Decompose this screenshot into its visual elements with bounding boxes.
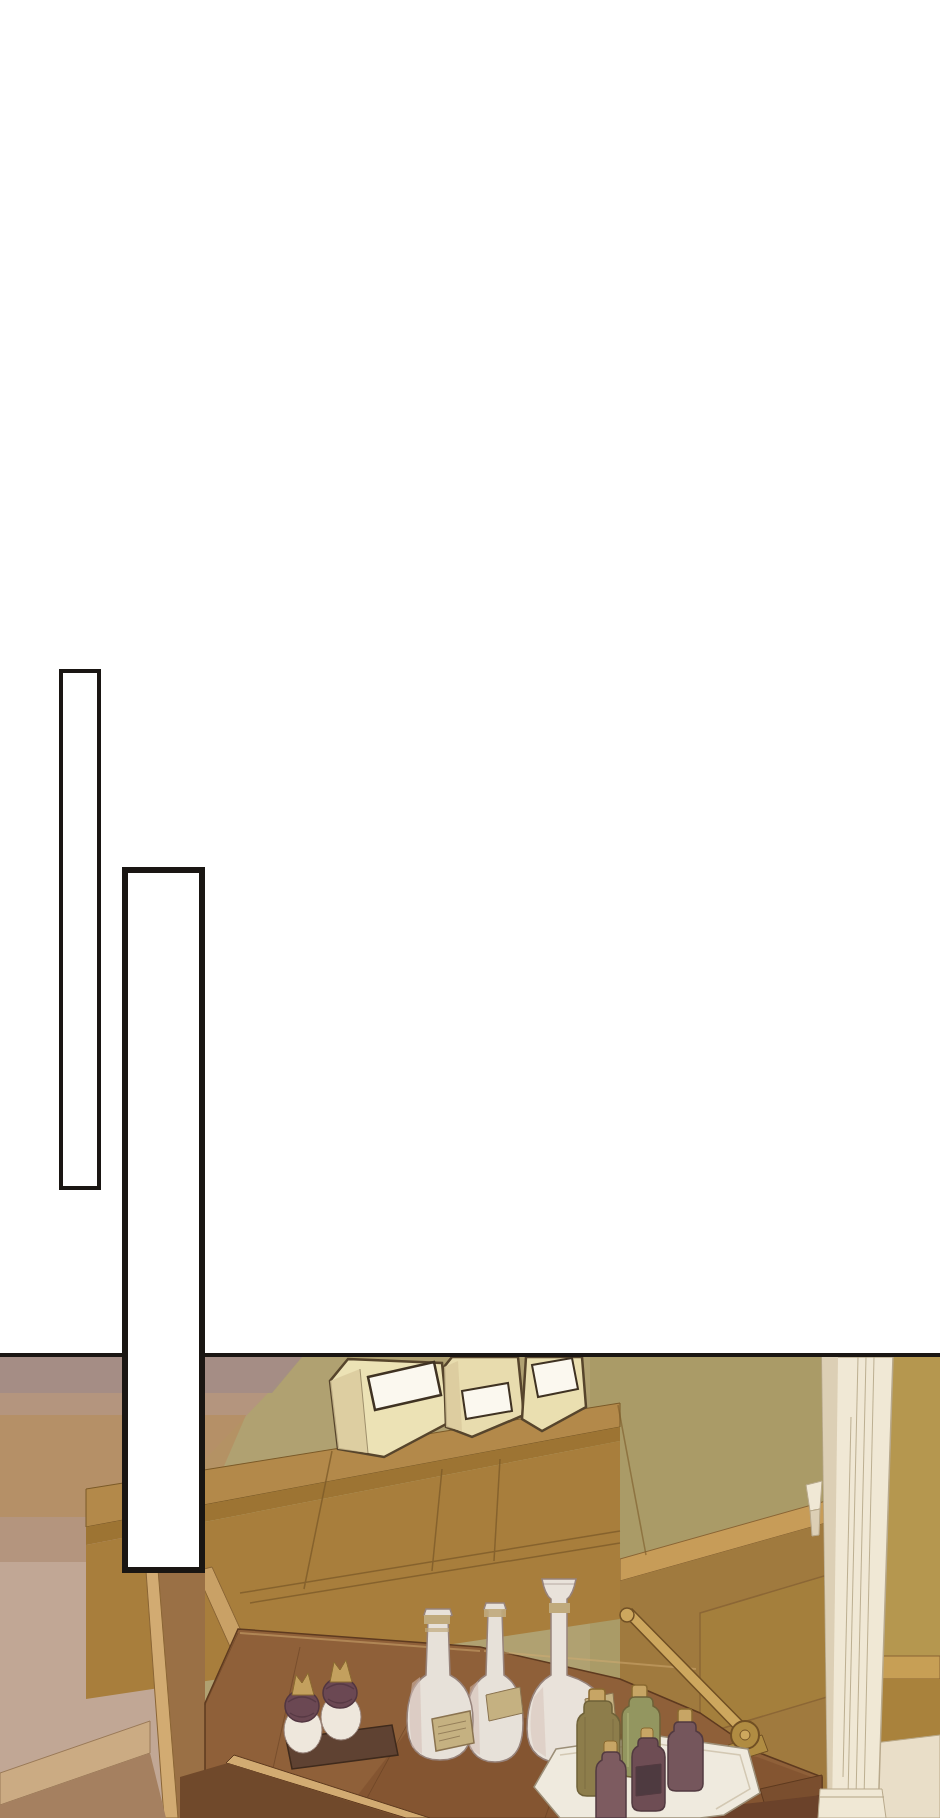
plum-bottle-1: [596, 1752, 626, 1818]
comic-page: [0, 0, 940, 1818]
speech-balloon-vertical-2: [122, 867, 205, 1573]
white-bottle-1-gold-band-2: [425, 1628, 449, 1632]
decanter-gold-band: [549, 1603, 570, 1613]
plum-bottle-2-label: [636, 1764, 661, 1796]
paper-bag-3-label: [532, 1358, 578, 1397]
white-bottle-1-gold-band: [424, 1615, 450, 1624]
pillar-molding-base: [810, 1509, 820, 1536]
plum-bottle-3: [668, 1722, 703, 1791]
white-bottle-1-shade: [410, 1677, 423, 1754]
stay-arm-hinge-center: [740, 1730, 750, 1740]
pillar-base: [818, 1789, 886, 1818]
speech-balloon-vertical-1: [59, 669, 101, 1190]
stay-arm-top-pivot: [620, 1608, 634, 1622]
white-bottle-2-gold-band: [484, 1609, 506, 1617]
